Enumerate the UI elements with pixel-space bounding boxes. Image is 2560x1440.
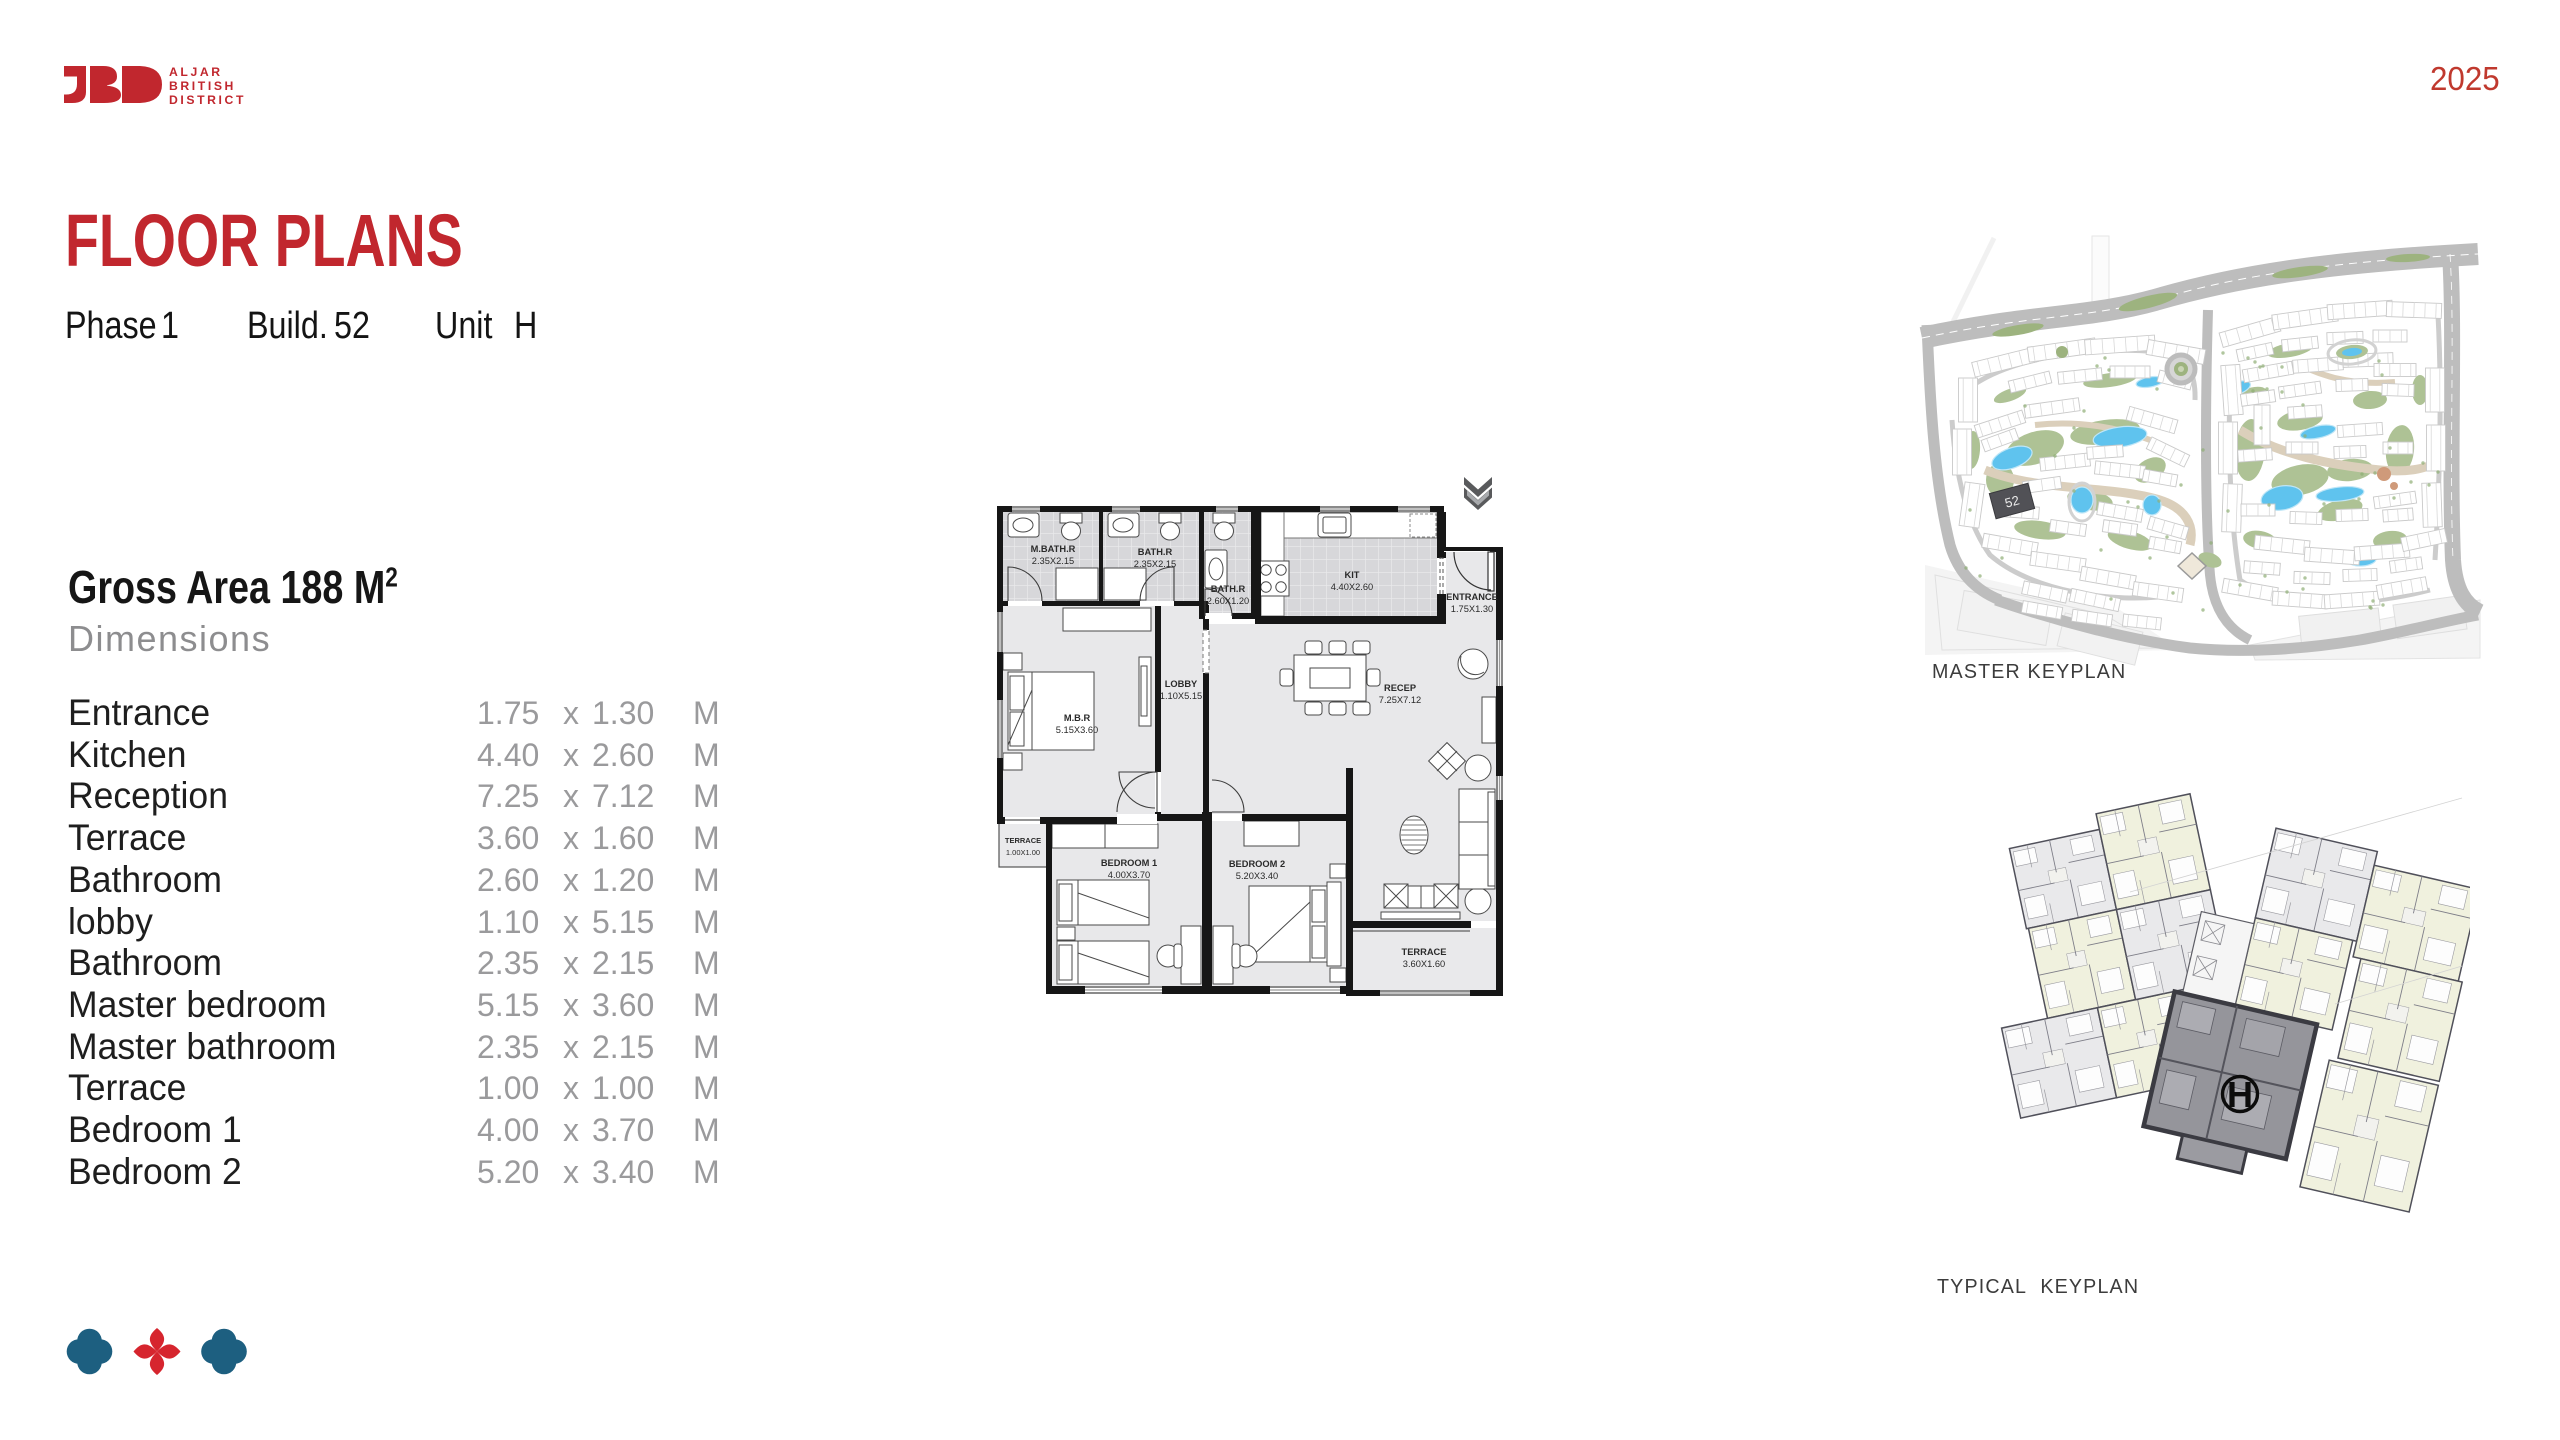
- svg-text:TERRACE: TERRACE: [1005, 836, 1041, 845]
- svg-text:KIT: KIT: [1345, 570, 1360, 580]
- svg-text:2.35X2.15: 2.35X2.15: [1134, 559, 1176, 569]
- svg-text:TERRACE: TERRACE: [1402, 947, 1447, 957]
- svg-text:DISTRICT: DISTRICT: [169, 93, 246, 107]
- svg-text:2.60X1.20: 2.60X1.20: [1207, 596, 1249, 606]
- svg-text:7.25X7.12: 7.25X7.12: [1379, 695, 1421, 705]
- svg-text:ALJAR: ALJAR: [169, 65, 223, 79]
- svg-text:BEDROOM 2: BEDROOM 2: [1229, 859, 1285, 869]
- svg-text:H: H: [2227, 1074, 2253, 1115]
- svg-text:M.BATH.R: M.BATH.R: [1031, 544, 1076, 554]
- svg-text:ENTRANCE: ENTRANCE: [1446, 592, 1498, 602]
- svg-text:RECEP: RECEP: [1384, 683, 1416, 693]
- svg-text:4.40X2.60: 4.40X2.60: [1331, 582, 1373, 592]
- svg-text:BATH.R: BATH.R: [1211, 584, 1246, 594]
- svg-text:1.00X1.00: 1.00X1.00: [1006, 848, 1040, 857]
- svg-text:M.B.R: M.B.R: [1064, 713, 1091, 723]
- svg-text:BATH.R: BATH.R: [1138, 547, 1173, 557]
- svg-text:1.75X1.30: 1.75X1.30: [1451, 604, 1493, 614]
- svg-text:2.35X2.15: 2.35X2.15: [1032, 556, 1074, 566]
- svg-text:3.60X1.60: 3.60X1.60: [1403, 959, 1445, 969]
- svg-text:4.00X3.70: 4.00X3.70: [1108, 870, 1150, 880]
- svg-text:5.20X3.40: 5.20X3.40: [1236, 871, 1278, 881]
- svg-text:BRITISH: BRITISH: [169, 79, 236, 93]
- svg-text:1.10X5.15: 1.10X5.15: [1160, 691, 1202, 701]
- svg-text:5.15X3.60: 5.15X3.60: [1056, 725, 1098, 735]
- svg-text:LOBBY: LOBBY: [1165, 679, 1198, 689]
- svg-text:BEDROOM 1: BEDROOM 1: [1101, 858, 1157, 868]
